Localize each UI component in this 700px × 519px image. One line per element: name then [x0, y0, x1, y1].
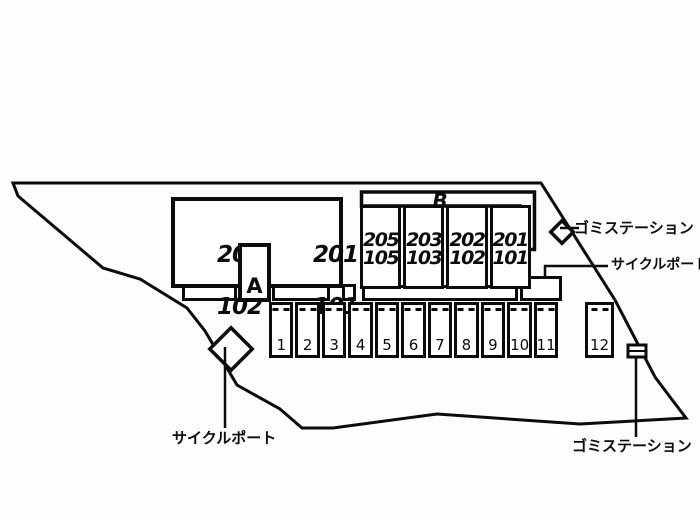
parking-stall: 8 — [454, 302, 478, 358]
building-b-unit-column: 203 103 — [403, 205, 444, 289]
garbage-station-label-bottom: ゴミステーション — [572, 438, 692, 454]
building-b-unit-column: 201 101 — [490, 205, 531, 289]
unit-number: 201 — [313, 242, 358, 268]
unit-number: 101 — [493, 247, 528, 269]
stall-number: 3 — [325, 337, 343, 354]
stall-dash — [379, 308, 396, 311]
parking-stall: 9 — [481, 302, 505, 358]
stall-number: 7 — [431, 337, 449, 354]
stall-dash — [299, 308, 316, 311]
stall-number: 8 — [457, 337, 475, 354]
stall-dash — [273, 308, 290, 311]
stall-dash — [591, 308, 608, 311]
stall-number: 10 — [510, 337, 528, 354]
garbage-station-label-top: ゴミステーション — [574, 220, 694, 236]
building-b-label: B — [360, 189, 520, 213]
building-b: 205 105 203 103 202 102 201 101 — [360, 205, 520, 289]
stall-dash — [458, 308, 475, 311]
stall-dash — [484, 308, 501, 311]
site-plan: 202 102 201 101 A B 205 105 203 103 202 … — [0, 0, 700, 519]
parking-row: 1 2 3 4 5 6 7 8 9 10 11 — [269, 302, 558, 358]
stall-dash — [511, 308, 528, 311]
building-a-label: A — [246, 274, 262, 298]
stall-dash — [326, 308, 343, 311]
parking-stall: 3 — [322, 302, 346, 358]
parking-stall: 2 — [295, 302, 319, 358]
stall-number: 12 — [588, 337, 611, 354]
parking-stall: 10 — [507, 302, 531, 358]
garbage-station-marker — [551, 221, 574, 244]
unit-number: 103 — [406, 247, 441, 269]
stall-number: 11 — [537, 337, 555, 354]
parking-stall: 7 — [428, 302, 452, 358]
stall-number: 9 — [484, 337, 502, 354]
parking-stall: 11 — [534, 302, 558, 358]
parking-stall: 5 — [375, 302, 399, 358]
building-b-unit-column: 202 102 — [446, 205, 487, 289]
building-b-unit-column: 205 105 — [360, 205, 401, 289]
stall-number: 5 — [378, 337, 396, 354]
unit-number: 102 — [449, 247, 484, 269]
cycle-port-label-left: サイクルポート — [172, 430, 276, 446]
stall-number: 1 — [272, 337, 290, 354]
parking-stall: 4 — [348, 302, 372, 358]
stall-number: 4 — [351, 337, 369, 354]
stall-dash — [352, 308, 369, 311]
parking-stall: 6 — [401, 302, 425, 358]
stall-number: 6 — [404, 337, 422, 354]
cycle-port-label-right: サイクルポート — [611, 257, 700, 273]
stall-dash — [431, 308, 448, 311]
building-a-entrance: A — [238, 243, 271, 302]
parking-stall: 1 — [269, 302, 293, 358]
stall-number: 2 — [298, 337, 316, 354]
parking-stall-12: 12 — [585, 302, 614, 358]
stall-dash — [405, 308, 422, 311]
unit-number: 105 — [363, 247, 398, 269]
stall-dash — [537, 308, 554, 311]
building-a-units-left: 202 102 — [175, 216, 241, 346]
